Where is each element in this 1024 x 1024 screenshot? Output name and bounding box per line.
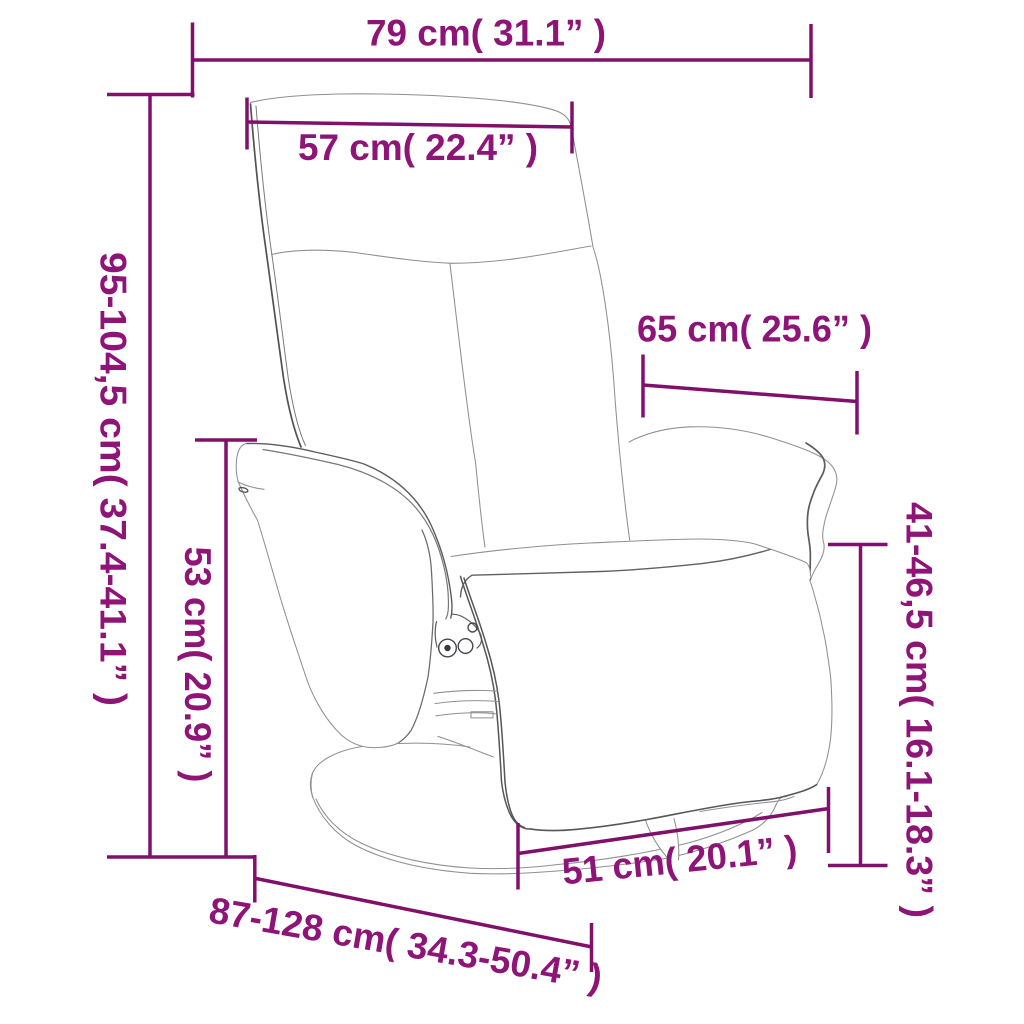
svg-text:79 cm( 31.1” ): 79 cm( 31.1” )	[366, 13, 606, 54]
svg-text:57 cm( 22.4” ): 57 cm( 22.4” )	[298, 127, 538, 168]
svg-text:41-46,5 cm( 16.1-18.3” ): 41-46,5 cm( 16.1-18.3” )	[899, 502, 940, 918]
svg-text:65 cm( 25.6” ): 65 cm( 25.6” )	[637, 309, 872, 350]
svg-text:53 cm( 20.9” ): 53 cm( 20.9” )	[177, 547, 218, 783]
svg-text:95-104,5 cm( 37.4-41.1” ): 95-104,5 cm( 37.4-41.1” )	[93, 252, 134, 706]
